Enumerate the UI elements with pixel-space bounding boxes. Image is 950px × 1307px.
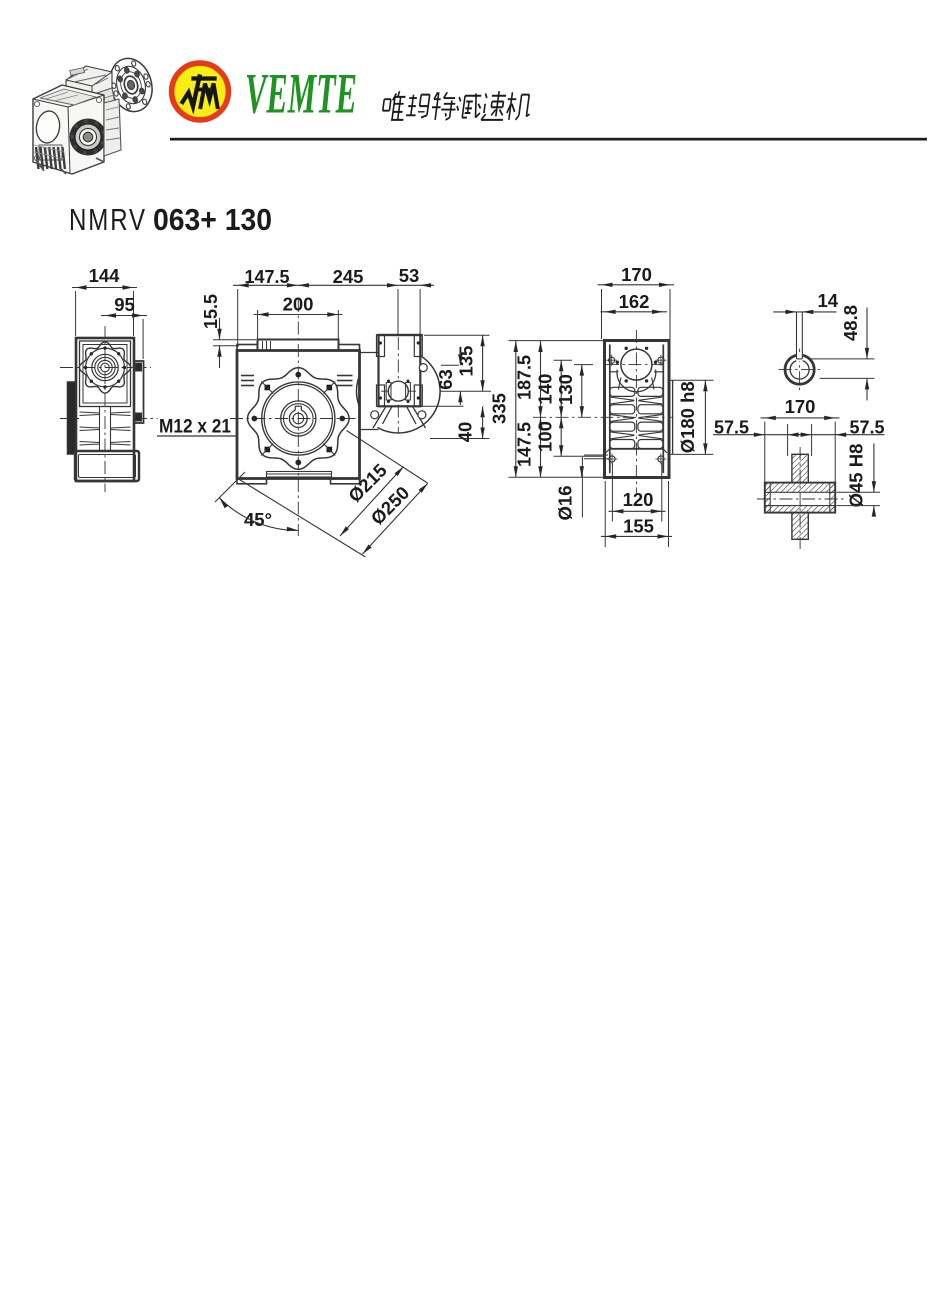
svg-text:14: 14 <box>818 290 839 311</box>
svg-text:144: 144 <box>89 265 121 286</box>
svg-text:135: 135 <box>456 346 477 377</box>
svg-text:245: 245 <box>333 266 364 287</box>
svg-text:95: 95 <box>114 294 135 315</box>
svg-text:63: 63 <box>435 369 456 390</box>
svg-text:170: 170 <box>785 396 816 417</box>
svg-text:NMRV: NMRV <box>69 203 147 237</box>
svg-text:40: 40 <box>455 422 476 443</box>
svg-text:53: 53 <box>399 265 420 286</box>
svg-text:Ø16: Ø16 <box>555 486 576 521</box>
svg-text:155: 155 <box>623 516 654 537</box>
svg-text:147.5: 147.5 <box>515 422 535 467</box>
svg-text:Ø45 H8: Ø45 H8 <box>846 444 867 508</box>
svg-text:VEMTE: VEMTE <box>245 63 357 126</box>
svg-text:15.5: 15.5 <box>201 294 221 329</box>
svg-text:162: 162 <box>619 291 650 312</box>
svg-text:140: 140 <box>535 374 556 405</box>
svg-text:Ø180 h8: Ø180 h8 <box>677 381 698 453</box>
svg-text:M12 x 21: M12 x 21 <box>159 417 231 438</box>
svg-text:335: 335 <box>489 393 510 424</box>
svg-text:063+ 130: 063+ 130 <box>153 203 272 237</box>
svg-text:130: 130 <box>555 374 576 405</box>
svg-text:100: 100 <box>535 421 556 452</box>
svg-text:120: 120 <box>623 489 654 510</box>
svg-text:187.5: 187.5 <box>515 355 535 400</box>
svg-text:170: 170 <box>621 264 652 285</box>
svg-text:147.5: 147.5 <box>244 267 289 287</box>
svg-text:200: 200 <box>283 294 314 315</box>
svg-text:48.8: 48.8 <box>840 305 861 341</box>
